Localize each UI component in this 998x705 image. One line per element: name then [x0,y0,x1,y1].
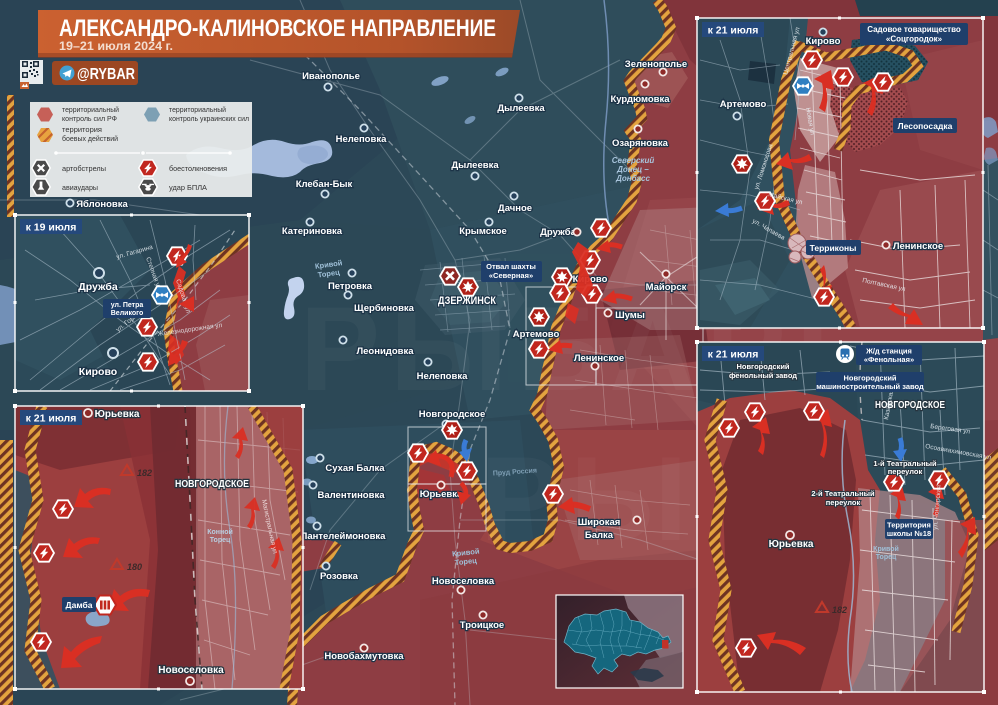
svg-text:Великого: Великого [111,310,143,317]
svg-text:Новгородский: Новгородский [736,362,789,371]
svg-text:Сухая Балка: Сухая Балка [325,463,385,474]
svg-text:2-й Театральный: 2-й Театральный [811,489,875,498]
svg-text:Щербиновка: Щербиновка [354,303,415,314]
svg-text:НОВГОРОДСКОЕ: НОВГОРОДСКОЕ [175,479,249,490]
svg-text:Дачное: Дачное [498,203,532,214]
svg-text:переулок: переулок [888,467,923,476]
svg-text:к 21 июля: к 21 июля [708,25,759,37]
svg-text:машиностроительный завод: машиностроительный завод [816,382,924,391]
svg-text:Озаряновка: Озаряновка [612,138,669,149]
svg-text:Кирово: Кирово [806,36,841,47]
svg-text:180: 180 [127,562,142,572]
svg-text:ул. Петра: ул. Петра [111,302,144,309]
svg-text:19–21 июля 2024 г.: 19–21 июля 2024 г. [59,39,173,53]
svg-text:Отвал шахты: Отвал шахты [486,262,536,271]
svg-text:Ленинское: Ленинское [893,241,943,252]
svg-text:Новоселовка: Новоселовка [158,665,224,676]
svg-text:боестолкновения: боестолкновения [169,164,227,173]
svg-text:Кривой: Кривой [873,545,899,553]
svg-text:Артемово: Артемово [720,99,767,110]
svg-text:Майорск: Майорск [646,282,687,293]
svg-text:Дылеевка: Дылеевка [497,103,545,114]
svg-text:Яблоновка: Яблоновка [76,199,128,210]
svg-text:Курдюмовка: Курдюмовка [610,94,670,105]
svg-text:Иванополье: Иванополье [302,71,360,82]
svg-text:Новоселовка: Новоселовка [432,576,495,587]
svg-text:Новгородское: Новгородское [419,409,486,420]
svg-text:Клебан-Бык: Клебан-Бык [296,179,353,190]
svg-text:182: 182 [137,468,152,478]
svg-text:«Соцгородок»: «Соцгородок» [886,35,943,44]
svg-text:к 19 июля: к 19 июля [26,222,77,234]
svg-text:«Северная»: «Северная» [489,271,533,280]
svg-text:удар БПЛА: удар БПЛА [169,183,207,192]
svg-text:Новобахмутовка: Новобахмутовка [324,651,404,662]
svg-text:Дружба: Дружба [78,281,118,293]
svg-text:Северский: Северский [612,156,655,165]
svg-text:Дружба: Дружба [540,227,576,238]
svg-text:Юрьевка: Юрьевка [95,409,140,420]
svg-text:Пантелеймоновка: Пантелеймоновка [301,531,387,542]
svg-text:территориальный: территориальный [169,105,226,114]
svg-text:Крымское: Крымское [459,226,507,237]
svg-text:фенольный завод: фенольный завод [729,371,797,380]
svg-text:контроль сил РФ: контроль сил РФ [62,114,117,123]
svg-text:@RYBAR: @RYBAR [77,66,135,83]
svg-text:ДЗЕРЖИНСК: ДЗЕРЖИНСК [438,295,496,307]
svg-text:территориальный: территориальный [62,105,119,114]
svg-text:контроль украинских сил: контроль украинских сил [169,114,249,123]
svg-text:к 21 июля: к 21 июля [708,349,759,361]
svg-text:Донбасс: Донбасс [615,174,650,183]
svg-text:авиаудары: авиаудары [62,183,98,192]
svg-text:артобстрелы: артобстрелы [62,164,106,173]
svg-text:Торец: Торец [210,537,231,544]
svg-text:Торец: Торец [876,554,897,561]
svg-text:Конной: Конной [207,528,233,536]
svg-text:Валентиновка: Валентиновка [318,490,386,501]
svg-text:Лесопосадка: Лесопосадка [898,121,953,131]
svg-text:школы №18: школы №18 [887,529,931,538]
svg-text:Зеленополье: Зеленополье [625,59,687,70]
svg-text:Ленинское: Ленинское [574,353,624,364]
svg-text:боевых действий: боевых действий [62,134,118,143]
svg-text:Широкая: Широкая [578,517,621,528]
svg-text:182: 182 [832,605,847,615]
svg-text:Троицкое: Троицкое [460,620,504,631]
svg-text:Донец –: Донец – [616,165,649,174]
svg-text:Терриконы: Терриконы [810,243,857,253]
svg-text:Петровка: Петровка [328,281,373,292]
svg-text:АЛЕКСАНДРО-КАЛИНОВСКОЕ НАПРАВЛ: АЛЕКСАНДРО-КАЛИНОВСКОЕ НАПРАВЛЕНИЕ [59,15,496,42]
svg-text:Шумы: Шумы [615,310,645,321]
svg-text:Катериновка: Катериновка [282,226,343,237]
svg-text:Балка: Балка [585,530,614,541]
svg-text:Нелеповка: Нелеповка [336,134,387,145]
svg-text:Юрьевка: Юрьевка [420,489,463,500]
svg-text:Дылеевка: Дылеевка [451,160,499,171]
svg-text:Садовое товарищество: Садовое товарищество [867,25,961,34]
svg-text:Кирово: Кирово [79,366,117,378]
svg-text:Леонидовка: Леонидовка [356,346,414,357]
svg-text:территория: территория [62,125,102,134]
svg-text:переулок: переулок [826,498,861,507]
svg-text:«Фенольная»: «Фенольная» [864,355,914,364]
svg-text:к 21 июля: к 21 июля [26,413,77,425]
svg-text:Розовка: Розовка [320,571,359,582]
svg-text:Дамба: Дамба [66,600,93,610]
svg-text:Юрьевка: Юрьевка [769,539,814,550]
svg-text:Артемово: Артемово [513,329,560,340]
svg-text:Нелеповка: Нелеповка [417,371,468,382]
